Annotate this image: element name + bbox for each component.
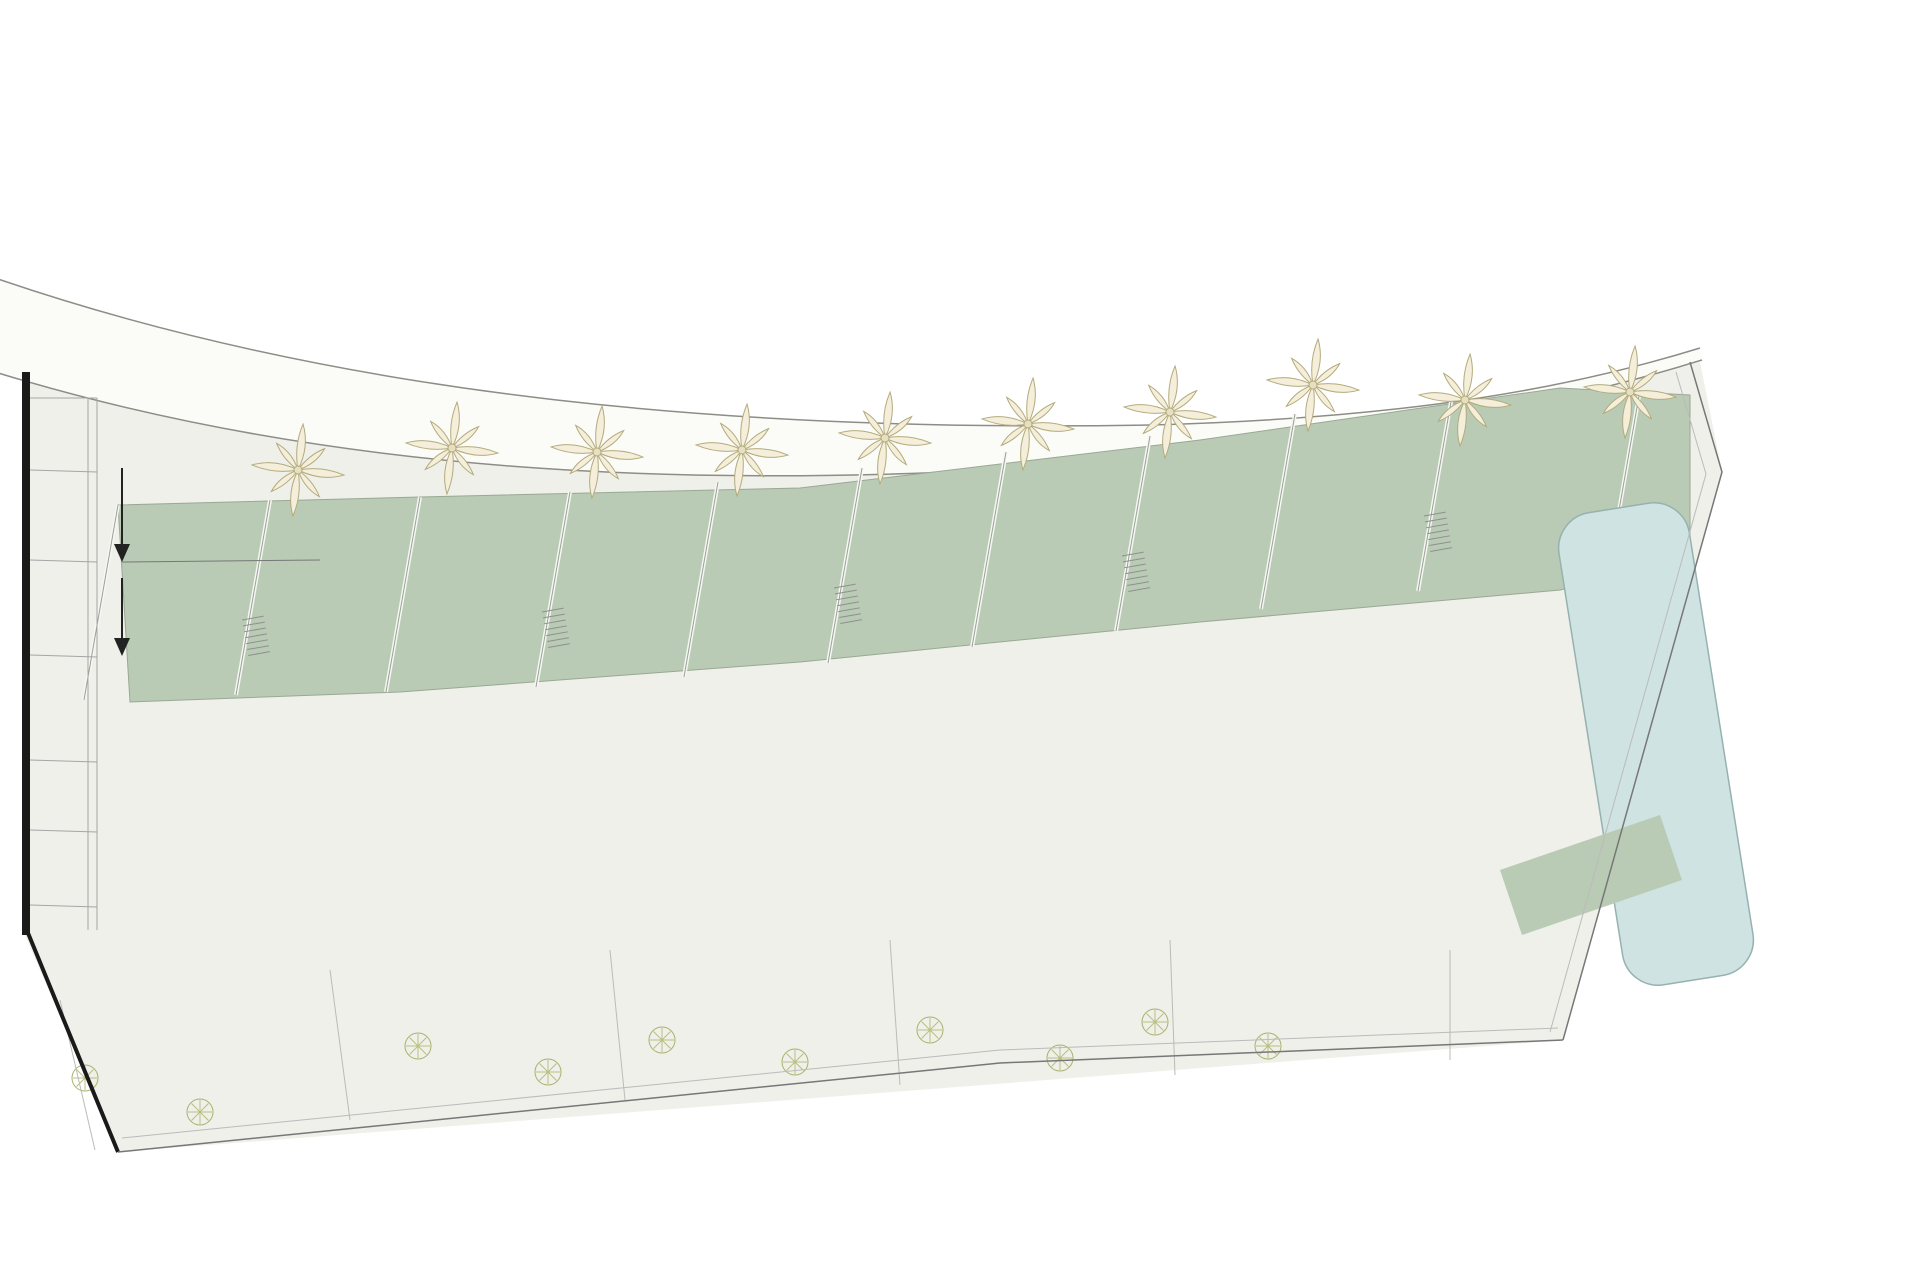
shrub-icon	[1142, 1009, 1168, 1035]
shrub-icon	[405, 1033, 431, 1059]
left-boundary-wall	[22, 372, 30, 935]
shrub-icon	[649, 1027, 675, 1053]
shrub-icon	[187, 1099, 213, 1125]
shrub-icon	[1047, 1045, 1073, 1071]
shrub-icon	[917, 1017, 943, 1043]
floor-plan-drawing	[0, 0, 1920, 1280]
floor-plan-page	[0, 0, 1920, 1280]
shrub-icon	[535, 1059, 561, 1085]
shrub-icon	[1255, 1033, 1281, 1059]
